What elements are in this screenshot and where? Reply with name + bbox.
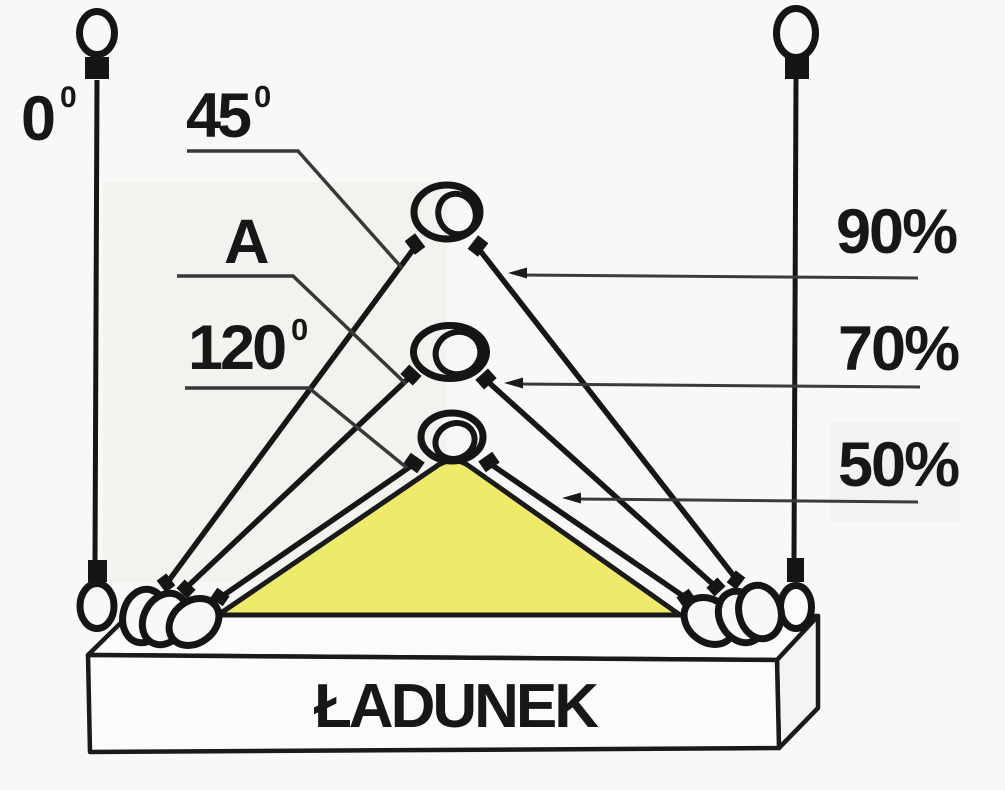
svg-text:120: 120 [188,313,285,383]
svg-text:90%: 90% [836,197,957,267]
svg-text:0: 0 [60,81,77,114]
svg-text:70%: 70% [838,314,959,384]
svg-text:0: 0 [291,312,308,347]
svg-text:45: 45 [186,81,251,151]
svg-text:0: 0 [21,84,56,154]
svg-text:A: A [224,207,270,277]
svg-text:0: 0 [254,79,271,114]
svg-text:ŁADUNEK: ŁADUNEK [314,672,599,741]
svg-text:50%: 50% [838,430,959,500]
